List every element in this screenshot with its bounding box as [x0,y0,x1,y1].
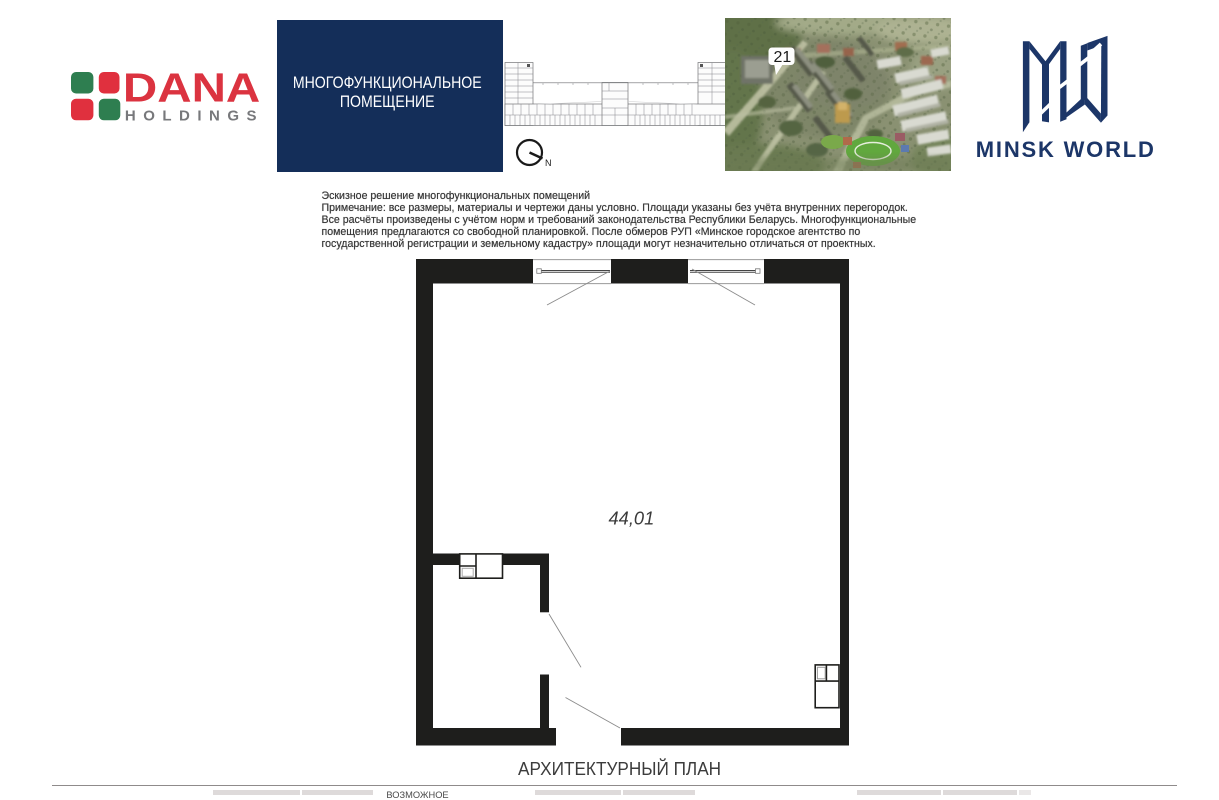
svg-text:MINSK WORLD: MINSK WORLD [976,137,1156,162]
svg-text:N: N [545,158,552,168]
svg-text:HOLDINGS: HOLDINGS [125,108,264,125]
svg-text:44,01: 44,01 [609,508,655,529]
svg-text:DANA: DANA [123,66,260,111]
svg-text:21: 21 [774,49,792,66]
